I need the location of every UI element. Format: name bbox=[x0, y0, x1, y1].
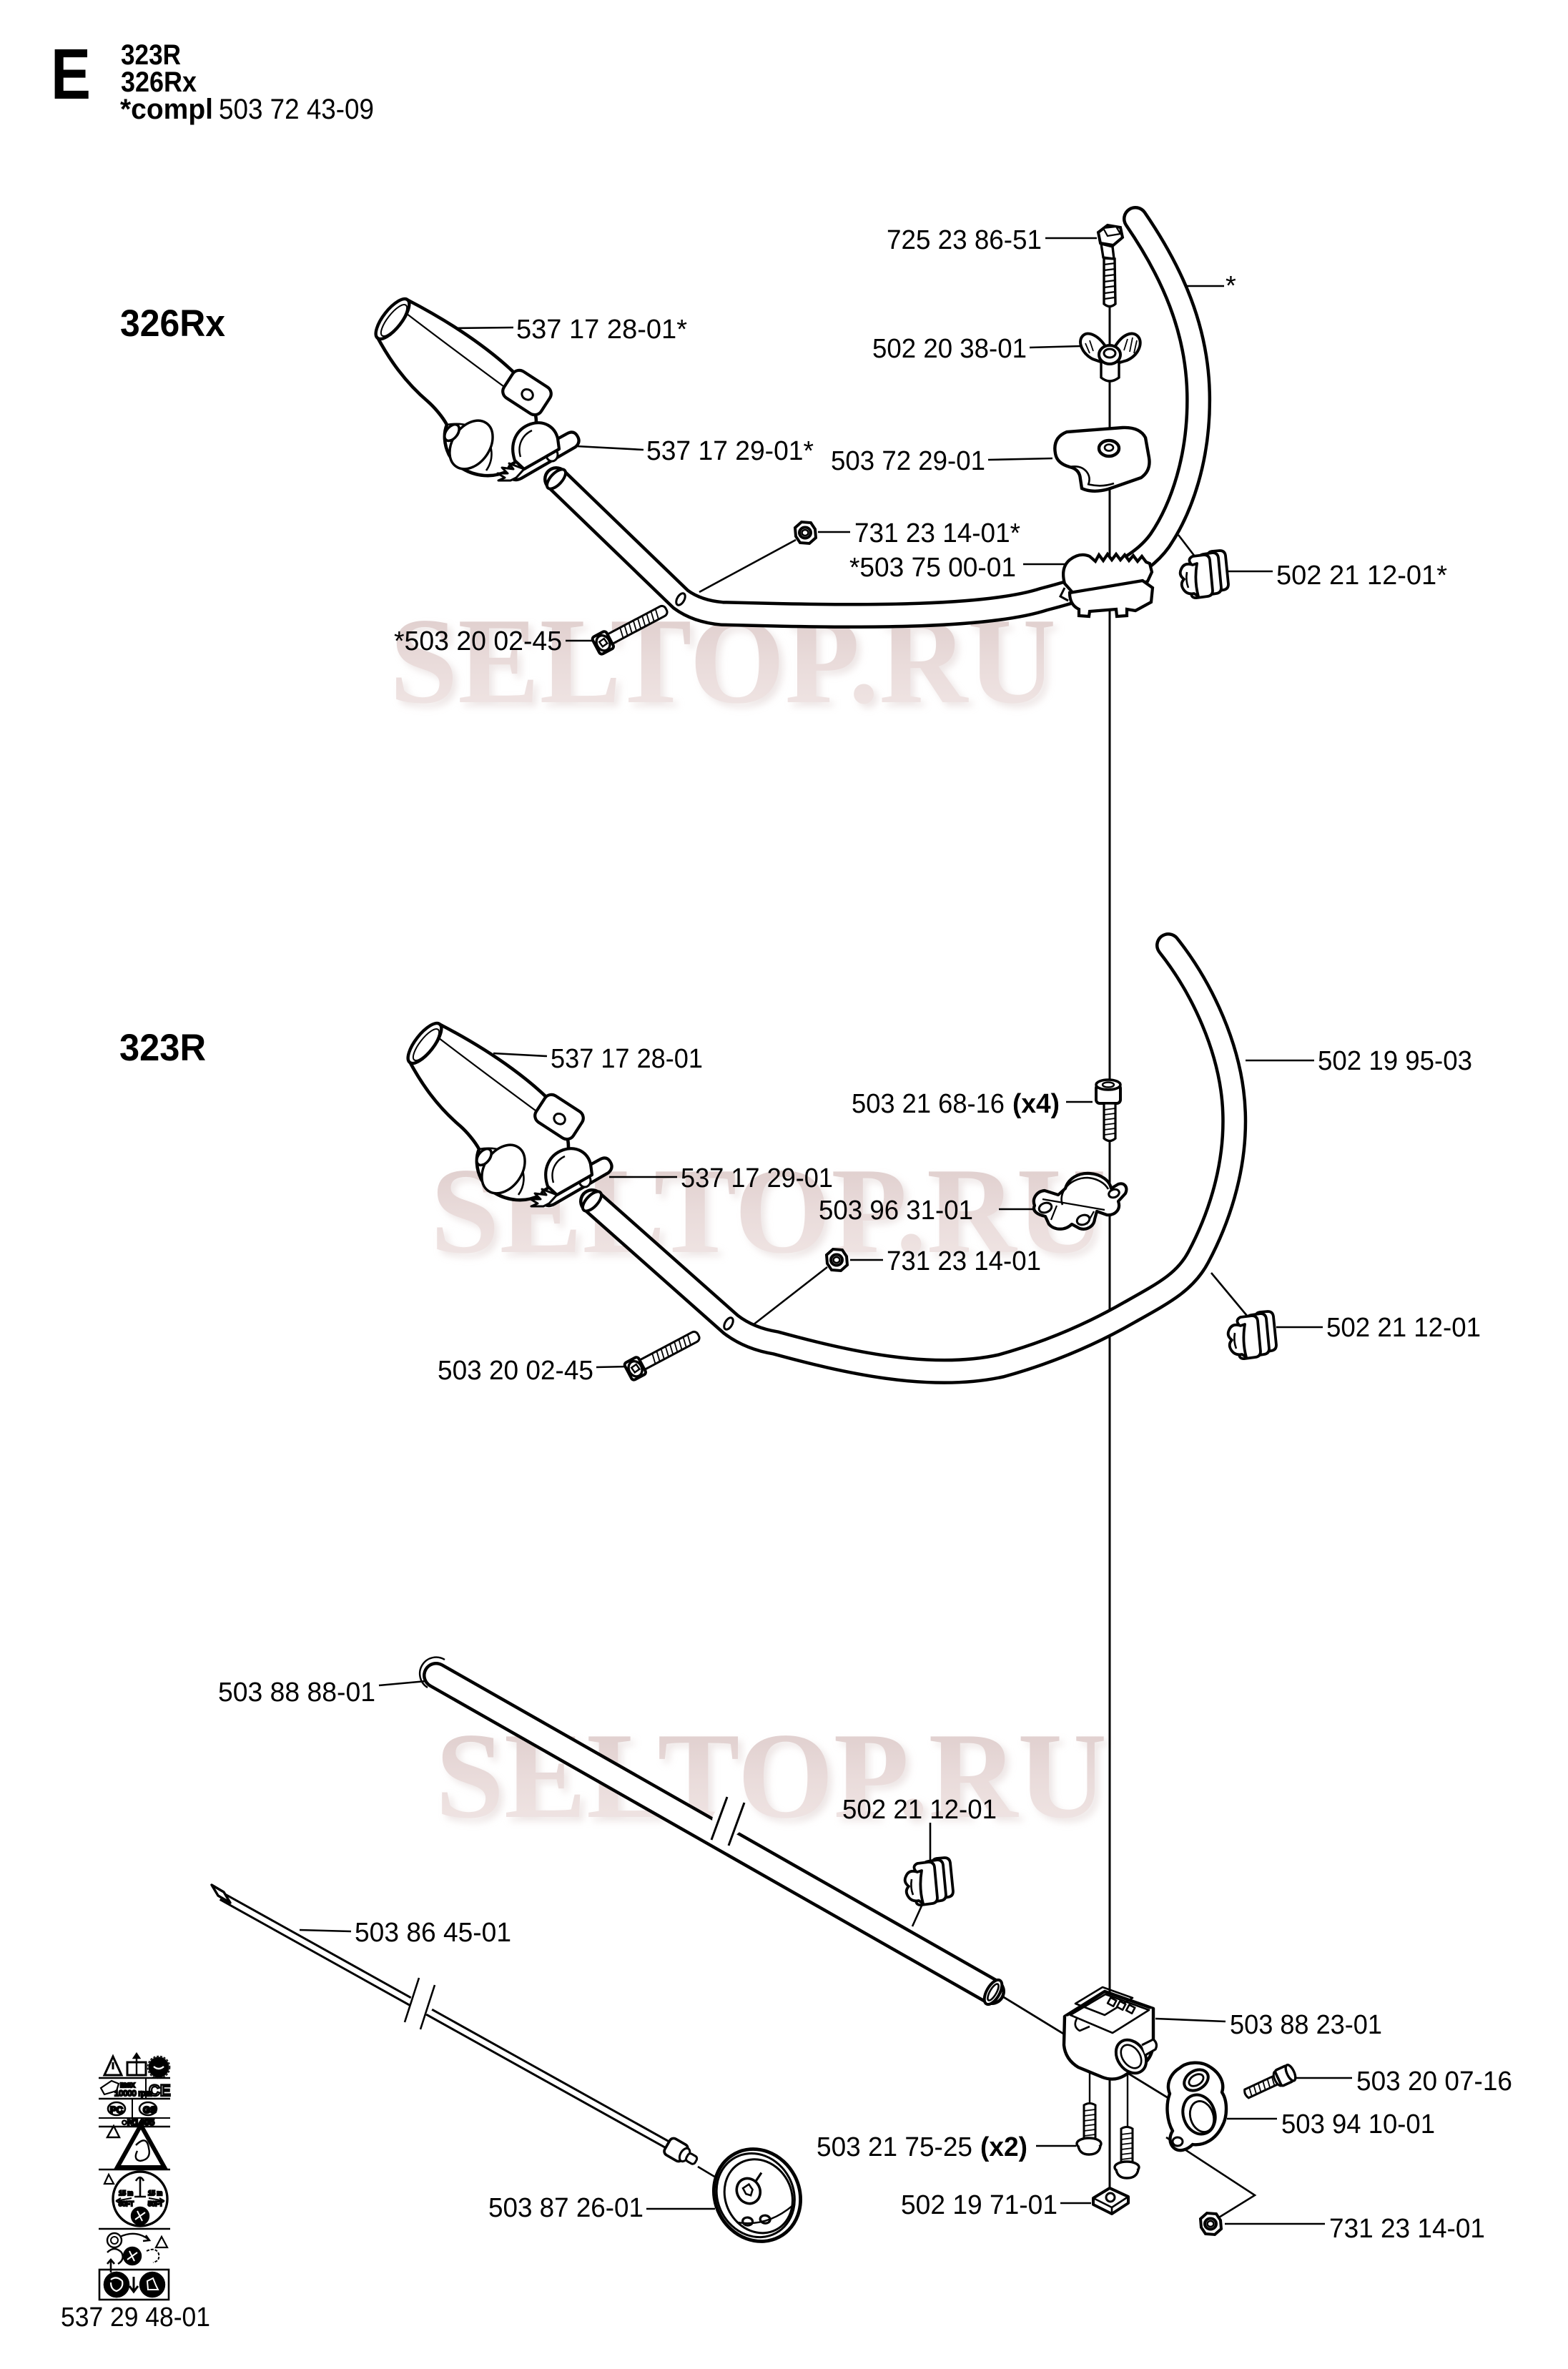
svg-text:725 23 86-51: 725 23 86-51 bbox=[887, 225, 1042, 255]
svg-text:503 96 31-01: 503 96 31-01 bbox=[819, 1196, 973, 1226]
svg-text:731 23 14-01*: 731 23 14-01* bbox=[854, 518, 1020, 548]
svg-text:50FT: 50FT bbox=[148, 2200, 164, 2207]
svg-text:503 20 02-45: 503 20 02-45 bbox=[438, 1356, 593, 1386]
svg-text:50FT: 50FT bbox=[119, 2200, 134, 2207]
svg-text:502 20 38-01: 502 20 38-01 bbox=[872, 334, 1027, 364]
svg-text:326Rx: 326Rx bbox=[120, 302, 225, 345]
svg-text:*503 75 00-01: *503 75 00-01 bbox=[849, 553, 1016, 583]
svg-text:502 21 12-01: 502 21 12-01 bbox=[842, 1795, 997, 1825]
svg-text:537 17 29-01: 537 17 29-01 bbox=[681, 1163, 833, 1193]
svg-text:503 72 43-09: 503 72 43-09 bbox=[219, 94, 374, 125]
svg-text:GS: GS bbox=[143, 2104, 157, 2115]
svg-text:731 23 14-01: 731 23 14-01 bbox=[1329, 2214, 1485, 2244]
svg-text:503 94 10-01: 503 94 10-01 bbox=[1281, 2109, 1435, 2139]
svg-text:503 86 45-01: 503 86 45-01 bbox=[355, 1918, 511, 1948]
svg-text:max: max bbox=[120, 2081, 135, 2089]
svg-text:537 17 28-01*: 537 17 28-01* bbox=[516, 315, 687, 345]
svg-text:537 29 48-01: 537 29 48-01 bbox=[61, 2302, 210, 2333]
svg-text:PC: PC bbox=[110, 2104, 124, 2115]
svg-text:15 m: 15 m bbox=[148, 2190, 162, 2197]
svg-text:502 21 12-01*: 502 21 12-01* bbox=[1276, 561, 1447, 591]
svg-text:502 19 95-03: 502 19 95-03 bbox=[1318, 1046, 1472, 1076]
svg-text:537 17 29-01*: 537 17 29-01* bbox=[646, 436, 814, 466]
svg-text:E: E bbox=[51, 34, 91, 114]
svg-text:503 88 23-01: 503 88 23-01 bbox=[1230, 2010, 1382, 2040]
svg-text:*: * bbox=[1226, 271, 1236, 301]
svg-text:*compl: *compl bbox=[120, 94, 213, 125]
svg-text:CE: CE bbox=[149, 2082, 171, 2099]
svg-text:15 m: 15 m bbox=[119, 2190, 133, 2197]
svg-text:503 72 29-01: 503 72 29-01 bbox=[831, 446, 985, 476]
svg-text:537 17 28-01: 537 17 28-01 bbox=[551, 1044, 703, 1074]
svg-text:503 87 26-01: 503 87 26-01 bbox=[488, 2193, 644, 2223]
svg-text:323R: 323R bbox=[119, 1027, 206, 1069]
svg-text:731 23 14-01: 731 23 14-01 bbox=[887, 1246, 1041, 1276]
svg-text:503 21 75-25(x2): 503 21 75-25(x2) bbox=[817, 2132, 1027, 2162]
svg-text:502 21 12-01: 502 21 12-01 bbox=[1326, 1313, 1481, 1343]
svg-text:503 88 88-01: 503 88 88-01 bbox=[218, 1678, 375, 1708]
svg-text:502 19 71-01: 502 19 71-01 bbox=[901, 2190, 1057, 2220]
svg-text:503 20 07-16: 503 20 07-16 bbox=[1356, 2067, 1512, 2097]
svg-text:*503 20 02-45: *503 20 02-45 bbox=[394, 626, 562, 656]
svg-text:503 21 68-16(x4): 503 21 68-16(x4) bbox=[852, 1089, 1060, 1119]
